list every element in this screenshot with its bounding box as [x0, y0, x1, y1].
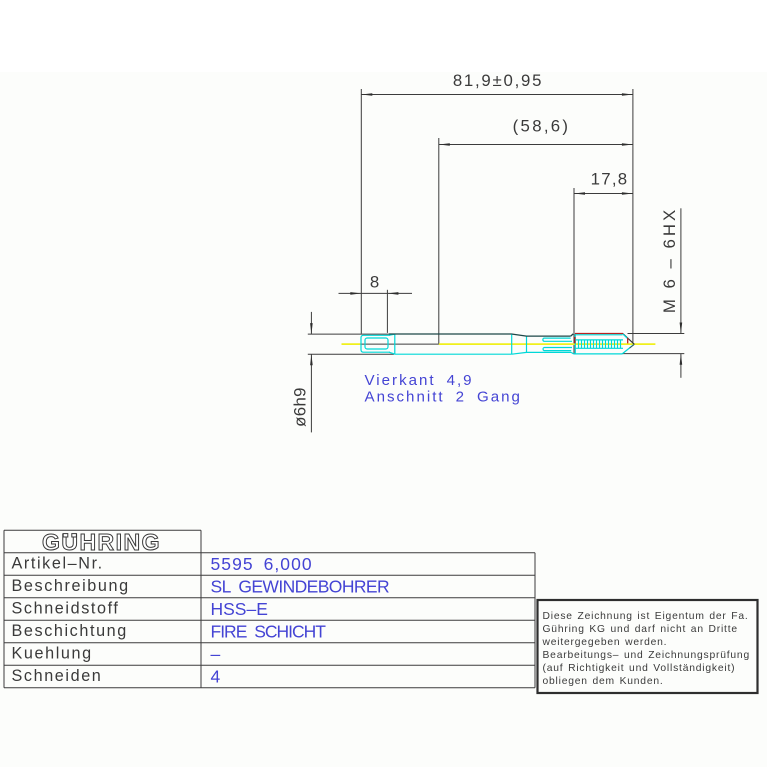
- svg-text:weitergegeben werden.: weitergegeben werden.: [542, 637, 668, 648]
- svg-text:Beschreibung: Beschreibung: [12, 577, 130, 595]
- svg-text:–: –: [211, 644, 221, 664]
- svg-text:Schneiden: Schneiden: [12, 667, 103, 685]
- svg-text:HSS–E: HSS–E: [211, 599, 268, 619]
- svg-text:81,9±0,95: 81,9±0,95: [453, 71, 543, 90]
- svg-text:ø6h9: ø6h9: [291, 387, 310, 427]
- svg-text:Artikel–Nr.: Artikel–Nr.: [12, 554, 104, 572]
- svg-text:17,8: 17,8: [591, 170, 629, 189]
- svg-text:(auf Richtigkeit und Vollständ: (auf Richtigkeit und Vollständigkeit): [543, 663, 736, 674]
- svg-text:obliegen dem Kunden.: obliegen dem Kunden.: [543, 676, 664, 687]
- svg-text:Bearbeitungs– und Zeichnungspr: Bearbeitungs– und Zeichnungsprüfung: [543, 650, 750, 661]
- svg-text:FIRE SCHICHT: FIRE SCHICHT: [211, 621, 327, 641]
- svg-text:Vierkant 4,9: Vierkant 4,9: [365, 372, 474, 389]
- svg-text:Anschnitt 2 Gang: Anschnitt 2 Gang: [365, 389, 522, 406]
- svg-text:Diese Zeichnung ist Eigentum d: Diese Zeichnung ist Eigentum der Fa.: [543, 611, 749, 622]
- svg-text:5595 6,000: 5595 6,000: [211, 554, 313, 574]
- svg-text:GUHRING: GUHRING: [42, 529, 161, 555]
- svg-text:Schneidstoff: Schneidstoff: [12, 599, 120, 617]
- svg-text:Gühring KG und darf nicht an D: Gühring KG und darf nicht an Dritte: [543, 624, 738, 635]
- svg-text:M 6 – 6HX: M 6 – 6HX: [660, 207, 679, 313]
- svg-text:8: 8: [370, 273, 379, 292]
- svg-text:SL GEWINDEBOHRER: SL GEWINDEBOHRER: [211, 576, 390, 596]
- svg-text:(58,6): (58,6): [513, 117, 571, 136]
- svg-text:Kuehlung: Kuehlung: [12, 644, 93, 662]
- svg-text:Beschichtung: Beschichtung: [12, 622, 128, 640]
- svg-text:4: 4: [211, 666, 221, 686]
